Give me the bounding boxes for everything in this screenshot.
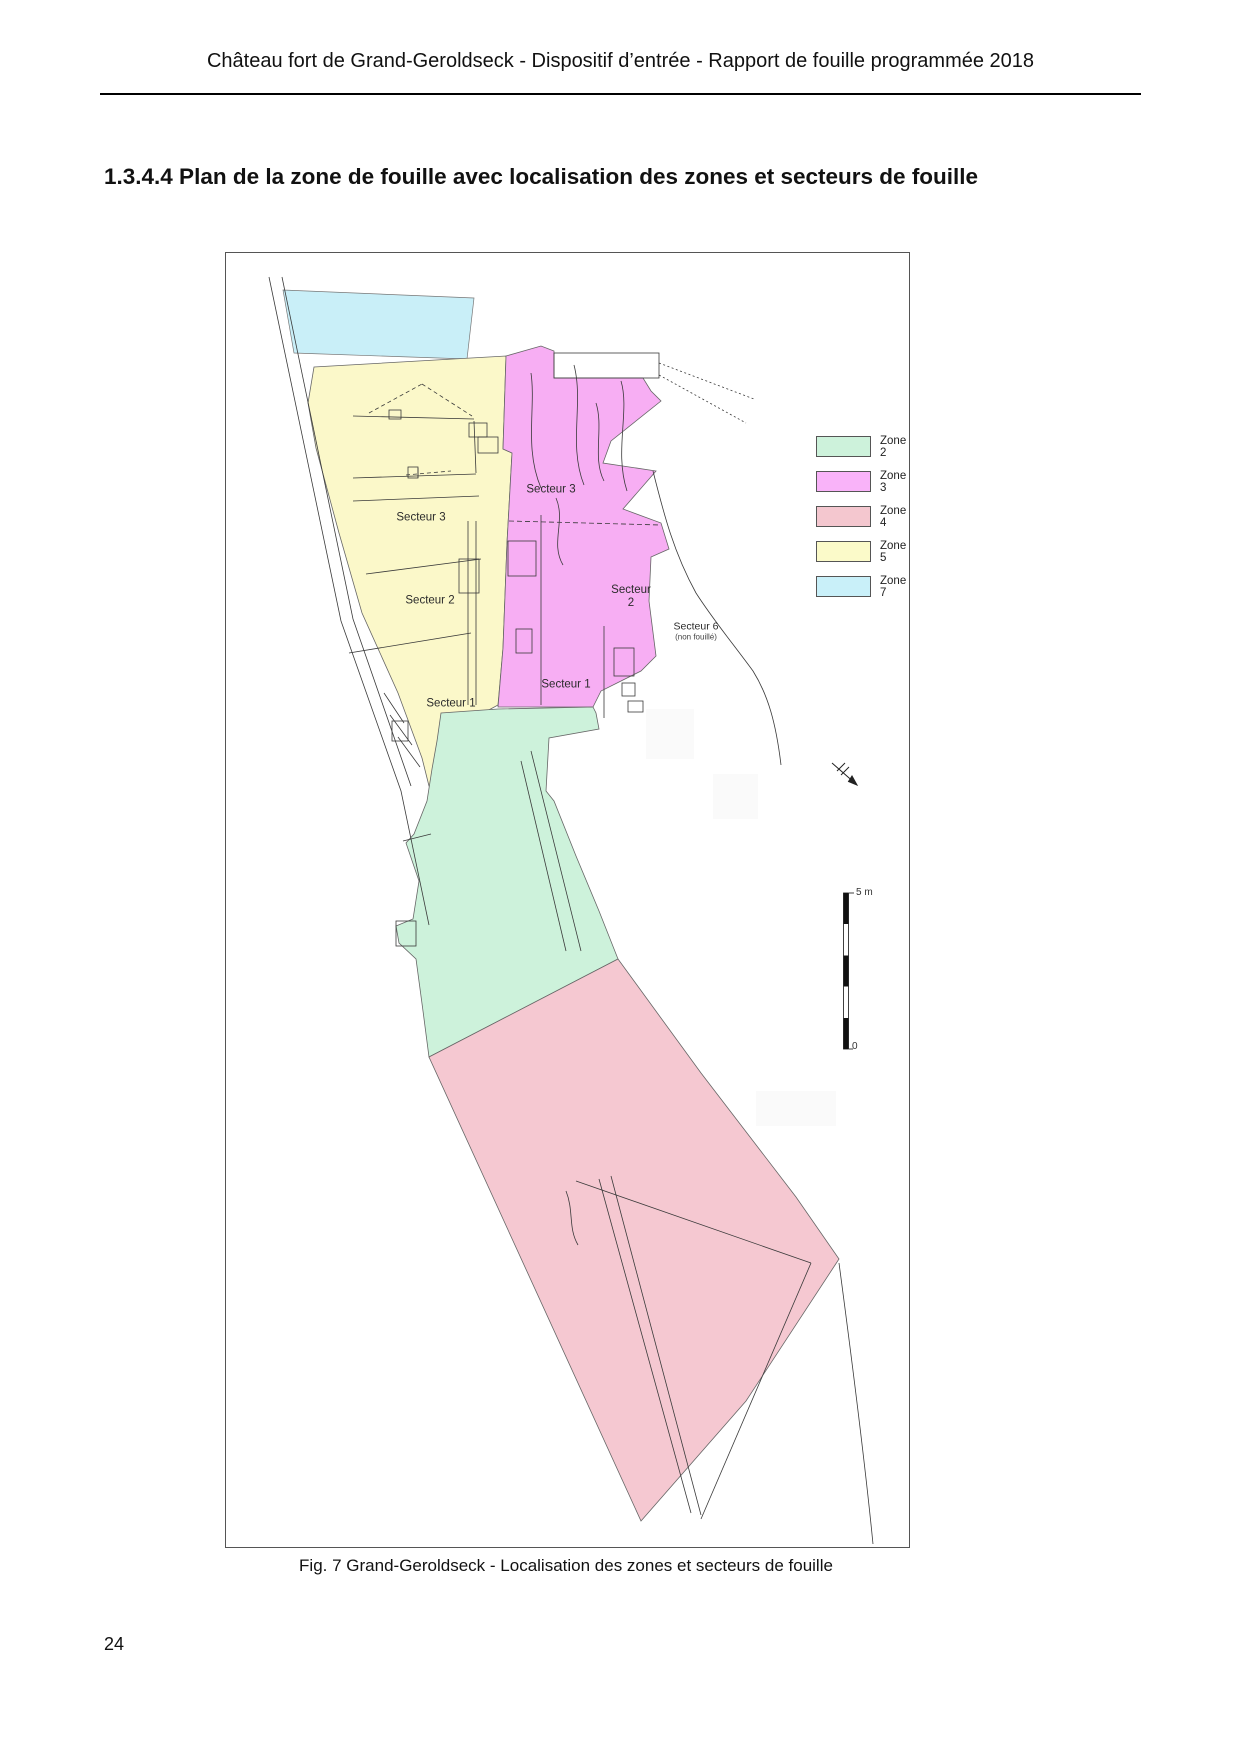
label-zone3-secteur2: Secteur 2 [611, 584, 651, 610]
legend-label-zone3: Zone 3 [880, 470, 909, 494]
page-header: Château fort de Grand-Geroldseck - Dispo… [100, 50, 1141, 73]
legend-swatch-zone2 [816, 436, 871, 457]
legend-label-zone2: Zone 2 [880, 435, 909, 459]
label-zone5-secteur1: Secteur 1 [426, 697, 475, 710]
label-secteur6-note: (non fouillé) [674, 632, 719, 641]
label-zone3-secteur2-word: Secteur [611, 584, 651, 596]
map-legend: Zone 2 Zone 3 Zone 4 Zone 5 Zone 7 [816, 436, 909, 597]
legend-label-zone7: Zone 7 [880, 575, 909, 599]
north-arrow-icon [832, 763, 857, 785]
zone-7-area [283, 290, 474, 359]
legend-label-zone5: Zone 5 [880, 540, 909, 564]
label-secteur6-title: Secteur 6 [674, 620, 719, 632]
legend-row-zone4: Zone 4 [816, 506, 909, 527]
legend-row-zone5: Zone 5 [816, 541, 909, 562]
excavation-map [226, 253, 909, 1547]
legend-swatch-zone4 [816, 506, 871, 527]
section-title: 1.3.4.4 Plan de la zone de fouille avec … [104, 164, 1144, 190]
label-zone5-secteur3: Secteur 3 [396, 511, 445, 524]
report-page: Château fort de Grand-Geroldseck - Dispo… [0, 0, 1241, 1755]
label-zone5-secteur2: Secteur 2 [405, 594, 454, 607]
zone-4-area [429, 959, 839, 1521]
label-zone3-secteur2-number: 2 [628, 597, 634, 609]
page-number: 24 [104, 1634, 124, 1655]
legend-row-zone7: Zone 7 [816, 576, 909, 597]
label-secteur6: Secteur 6 (non fouillé) [674, 620, 719, 641]
scale-zero-label: 0 [852, 1041, 858, 1052]
figure-caption: Fig. 7 Grand-Geroldseck - Localisation d… [166, 1556, 966, 1576]
legend-row-zone2: Zone 2 [816, 436, 909, 457]
legend-swatch-zone5 [816, 541, 871, 562]
scale-top-label: 5 m [856, 887, 873, 898]
label-zone3-secteur3: Secteur 3 [526, 483, 575, 496]
label-zone3-secteur1: Secteur 1 [541, 678, 590, 691]
legend-row-zone3: Zone 3 [816, 471, 909, 492]
legend-swatch-zone7 [816, 576, 871, 597]
legend-swatch-zone3 [816, 471, 871, 492]
header-rule [100, 93, 1141, 95]
legend-label-zone4: Zone 4 [880, 505, 909, 529]
scale-bar [844, 893, 855, 1049]
figure-plan: Secteur 3 Secteur 3 Secteur 2 Secteur 2 … [225, 252, 910, 1548]
